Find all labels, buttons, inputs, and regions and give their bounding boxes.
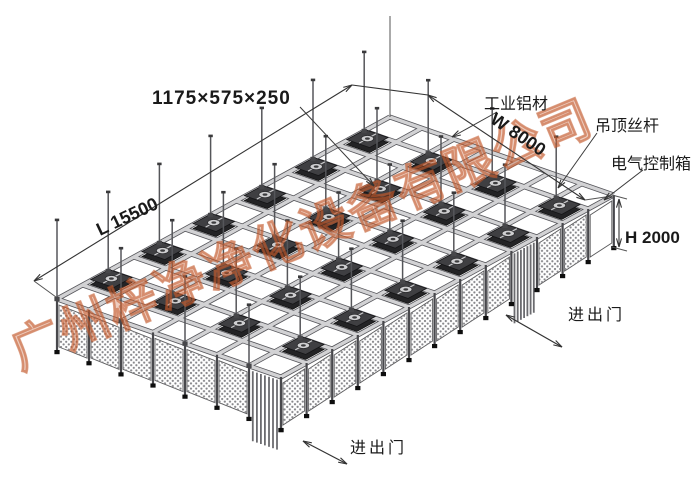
suspension-rod xyxy=(208,135,213,218)
wall-panel xyxy=(309,355,331,411)
ffu-size-label: 1175×575×250 xyxy=(152,88,291,109)
ceiling-rod-label: 吊顶丝杆 xyxy=(595,117,659,135)
door-strip-curtain xyxy=(253,371,277,449)
suspension-rod xyxy=(259,107,264,190)
diagram-page: 广州梓净净化设备有限公司 1175×575×250 L 15500 W 8000… xyxy=(0,0,700,496)
door-strip-curtain xyxy=(515,243,534,324)
wall-panel xyxy=(385,313,407,369)
door-label-right: 进出门 xyxy=(568,306,625,324)
wall-panel xyxy=(155,338,183,391)
cleanroom-isometric-diagram: 广州梓净净化设备有限公司 1175×575×250 L 15500 W 8000… xyxy=(0,0,700,496)
wall-panel xyxy=(539,229,561,285)
length-dimension-label: L 15500 xyxy=(93,193,161,239)
wall-panel xyxy=(219,361,247,414)
wall-panel xyxy=(411,299,433,355)
suspension-rod xyxy=(426,79,431,156)
wall-panel xyxy=(334,341,356,397)
wall-panel xyxy=(488,257,510,313)
control-box-label: 电气控制箱 xyxy=(611,155,691,173)
wall-panel xyxy=(437,285,459,341)
suspension-rod xyxy=(362,51,367,134)
wall-panel xyxy=(283,369,305,425)
industrial-aluminum-label: 工业铝材 xyxy=(484,95,548,113)
wall-panel xyxy=(462,271,484,327)
suspension-rod xyxy=(54,219,59,302)
wall-panel xyxy=(360,327,382,383)
control-box-panel xyxy=(590,201,612,257)
suspension-rod xyxy=(310,79,315,162)
door-label-bottom: 进出门 xyxy=(350,439,407,457)
height-dimension-label: H 2000 xyxy=(625,228,680,247)
wall-panel xyxy=(187,350,215,403)
wall-panel xyxy=(565,215,587,271)
